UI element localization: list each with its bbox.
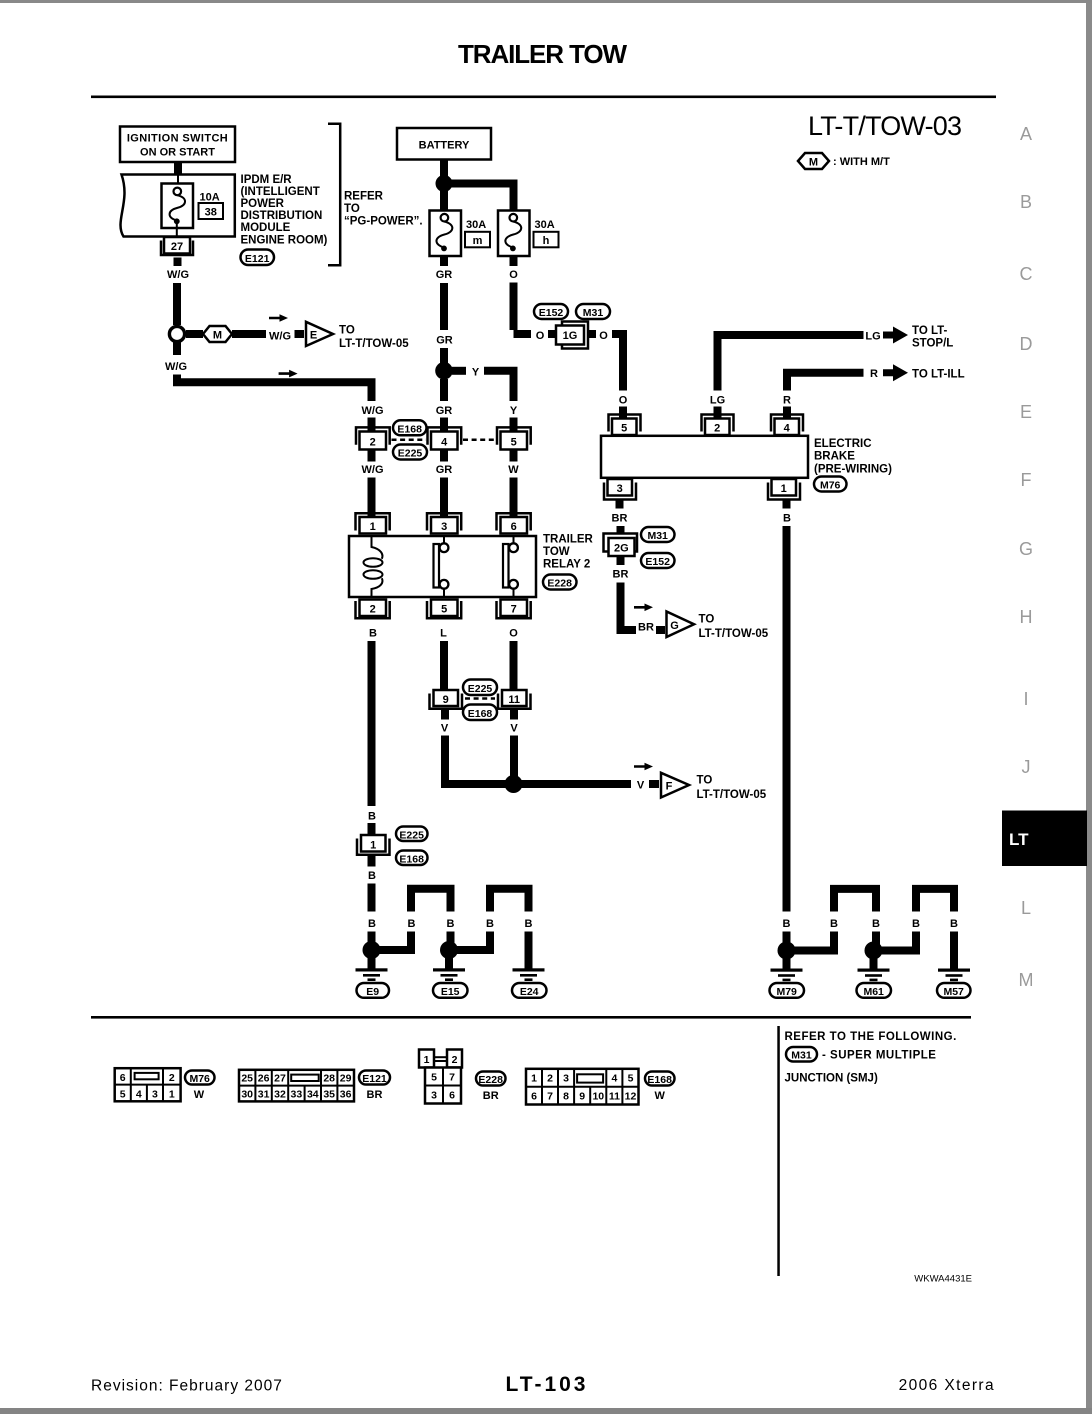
- svg-text:3: 3: [617, 483, 623, 495]
- svg-text:R: R: [783, 395, 791, 407]
- svg-text:6: 6: [120, 1072, 126, 1084]
- svg-text:E168: E168: [399, 853, 424, 865]
- svg-text:M79: M79: [776, 986, 797, 998]
- svg-text:30A: 30A: [535, 219, 555, 231]
- svg-text:28: 28: [323, 1073, 335, 1085]
- svg-text:DISTRIBUTION: DISTRIBUTION: [241, 210, 323, 222]
- svg-text:5: 5: [441, 604, 447, 616]
- svg-text:33: 33: [291, 1088, 303, 1100]
- svg-text:BR: BR: [612, 513, 628, 525]
- svg-text:TRAILER TOW: TRAILER TOW: [458, 39, 628, 69]
- svg-text:M57: M57: [943, 986, 964, 998]
- svg-text:G: G: [670, 620, 679, 632]
- svg-text:1: 1: [531, 1073, 537, 1085]
- svg-text:Y: Y: [472, 366, 480, 378]
- svg-text:JUNCTION (SMJ): JUNCTION (SMJ): [785, 1073, 878, 1085]
- svg-text:E9: E9: [366, 986, 379, 998]
- svg-text:TO: TO: [339, 325, 355, 337]
- svg-text:38: 38: [205, 207, 217, 219]
- svg-text:O: O: [509, 628, 518, 640]
- svg-text:LG: LG: [865, 331, 880, 343]
- svg-text:E168: E168: [397, 423, 422, 435]
- svg-text:ELECTRIC: ELECTRIC: [814, 438, 872, 450]
- svg-text:7: 7: [511, 604, 517, 616]
- svg-text:9: 9: [579, 1091, 585, 1103]
- svg-text:IGNITION SWITCH: IGNITION SWITCH: [127, 133, 228, 145]
- svg-text:1: 1: [781, 483, 787, 495]
- svg-text:TO LT-: TO LT-: [912, 325, 948, 337]
- svg-text:6: 6: [531, 1091, 537, 1103]
- svg-text:B: B: [368, 918, 376, 930]
- svg-text:M31: M31: [791, 1050, 812, 1062]
- svg-text:RELAY 2: RELAY 2: [543, 559, 590, 571]
- svg-text:LT-T/TOW-03: LT-T/TOW-03: [808, 111, 961, 141]
- svg-text:BR: BR: [638, 622, 654, 634]
- svg-text:B: B: [369, 628, 377, 640]
- svg-text:O: O: [619, 395, 628, 407]
- svg-text:B: B: [830, 918, 838, 930]
- svg-text:GR: GR: [436, 405, 453, 417]
- svg-text:R: R: [870, 368, 878, 380]
- svg-text:D: D: [1020, 334, 1033, 354]
- svg-text:B: B: [368, 870, 376, 882]
- svg-text:2: 2: [547, 1073, 553, 1085]
- svg-text:W/G: W/G: [362, 464, 384, 476]
- svg-text:C: C: [1020, 264, 1033, 284]
- svg-text:GR: GR: [436, 464, 453, 476]
- svg-text:35: 35: [323, 1088, 335, 1100]
- svg-text:B: B: [1020, 192, 1032, 212]
- svg-text:E168: E168: [647, 1074, 672, 1086]
- svg-text:LT-T/TOW-05: LT-T/TOW-05: [697, 789, 767, 801]
- svg-text:B: B: [486, 918, 494, 930]
- svg-text:36: 36: [340, 1088, 352, 1100]
- svg-text:BRAKE: BRAKE: [814, 451, 855, 463]
- svg-text:“PG-POWER”.: “PG-POWER”.: [344, 216, 423, 228]
- svg-text:30A: 30A: [466, 219, 486, 231]
- svg-text:1: 1: [370, 521, 376, 533]
- svg-text:G: G: [1019, 539, 1033, 559]
- svg-text:5: 5: [120, 1088, 126, 1100]
- svg-text:E225: E225: [399, 829, 424, 841]
- svg-text:TRAILER: TRAILER: [543, 534, 594, 546]
- svg-text:LT: LT: [1009, 830, 1029, 849]
- svg-text:4: 4: [611, 1073, 617, 1085]
- svg-text:GR: GR: [436, 335, 453, 347]
- svg-text:3: 3: [152, 1088, 158, 1100]
- svg-text:B: B: [783, 513, 791, 525]
- svg-text:h: h: [543, 235, 550, 247]
- svg-text:: WITH M/T: : WITH M/T: [833, 156, 890, 168]
- svg-text:3: 3: [441, 521, 447, 533]
- svg-text:H: H: [1020, 607, 1033, 627]
- svg-text:W/G: W/G: [165, 361, 187, 373]
- svg-text:30: 30: [241, 1088, 253, 1100]
- svg-text:BATTERY: BATTERY: [419, 140, 470, 152]
- svg-text:B: B: [368, 811, 376, 823]
- svg-text:TO: TO: [699, 614, 715, 626]
- svg-text:POWER: POWER: [241, 198, 285, 210]
- svg-text:4: 4: [784, 423, 791, 435]
- svg-text:ENGINE ROOM): ENGINE ROOM): [241, 235, 328, 247]
- svg-text:B: B: [912, 918, 920, 930]
- svg-text:BR: BR: [367, 1089, 383, 1101]
- svg-text:9: 9: [443, 694, 449, 706]
- svg-text:3: 3: [563, 1073, 569, 1085]
- svg-text:8: 8: [563, 1091, 569, 1103]
- svg-text:LT-T/TOW-05: LT-T/TOW-05: [699, 628, 769, 640]
- svg-text:E121: E121: [362, 1073, 387, 1085]
- svg-text:B: B: [950, 918, 958, 930]
- svg-text:W: W: [508, 464, 519, 476]
- svg-text:W/G: W/G: [269, 331, 291, 343]
- svg-text:10: 10: [592, 1091, 604, 1103]
- svg-text:REFER: REFER: [344, 191, 384, 203]
- svg-text:LT-103: LT-103: [506, 1373, 589, 1396]
- svg-text:2: 2: [714, 423, 720, 435]
- svg-text:O: O: [509, 269, 518, 281]
- svg-text:E168: E168: [468, 708, 493, 720]
- svg-text:31: 31: [258, 1088, 270, 1100]
- svg-text:MODULE: MODULE: [241, 222, 291, 234]
- svg-text:25: 25: [241, 1073, 253, 1085]
- svg-text:STOP/L: STOP/L: [912, 338, 953, 350]
- svg-text:IPDM E/R: IPDM E/R: [241, 174, 293, 186]
- svg-text:B: B: [447, 918, 455, 930]
- svg-text:1: 1: [424, 1054, 430, 1066]
- svg-text:(PRE-WIRING): (PRE-WIRING): [814, 464, 892, 476]
- svg-text:M76: M76: [189, 1073, 210, 1085]
- svg-text:L: L: [1021, 898, 1031, 918]
- svg-text:E24: E24: [520, 986, 539, 998]
- svg-text:27: 27: [171, 241, 183, 253]
- svg-text:M76: M76: [820, 480, 841, 492]
- svg-text:7: 7: [449, 1071, 455, 1083]
- svg-text:V: V: [441, 723, 449, 735]
- svg-text:GR: GR: [436, 269, 453, 281]
- svg-text:E152: E152: [645, 556, 670, 568]
- svg-text:E: E: [310, 330, 317, 342]
- svg-text:1: 1: [370, 839, 376, 851]
- svg-text:F: F: [666, 781, 673, 793]
- svg-text:6: 6: [449, 1089, 455, 1101]
- svg-text:L: L: [440, 628, 447, 640]
- svg-text:6: 6: [511, 521, 517, 533]
- svg-text:LG: LG: [710, 395, 725, 407]
- svg-text:5: 5: [621, 423, 627, 435]
- svg-text:TO: TO: [344, 203, 360, 215]
- svg-text:2: 2: [452, 1054, 458, 1066]
- svg-text:3: 3: [431, 1089, 437, 1101]
- svg-text:J: J: [1022, 757, 1031, 777]
- svg-text:Revision: February 2007: Revision: February 2007: [91, 1378, 283, 1395]
- svg-text:34: 34: [307, 1088, 319, 1100]
- svg-text:4: 4: [136, 1088, 142, 1100]
- svg-text:TO: TO: [697, 775, 713, 787]
- svg-text:5: 5: [628, 1073, 634, 1085]
- svg-text:M: M: [809, 157, 818, 169]
- svg-text:V: V: [637, 780, 645, 792]
- svg-text:TOW: TOW: [543, 546, 570, 558]
- svg-text:O: O: [536, 330, 545, 342]
- svg-text:M: M: [213, 330, 222, 342]
- svg-text:10A: 10A: [200, 192, 220, 204]
- svg-text:E225: E225: [398, 448, 423, 460]
- svg-text:Y: Y: [510, 405, 518, 417]
- svg-text:32: 32: [274, 1088, 286, 1100]
- svg-text:1G: 1G: [563, 330, 578, 342]
- svg-text:2: 2: [169, 1072, 175, 1084]
- svg-text:W/G: W/G: [167, 269, 189, 281]
- svg-text:M61: M61: [863, 986, 884, 998]
- svg-text:27: 27: [274, 1073, 286, 1085]
- svg-text:B: B: [525, 918, 533, 930]
- svg-text:M: M: [1019, 970, 1034, 990]
- svg-text:E225: E225: [468, 683, 493, 695]
- svg-text:B: B: [408, 918, 416, 930]
- svg-text:E: E: [1020, 402, 1032, 422]
- svg-text:5: 5: [511, 436, 517, 448]
- svg-text:2: 2: [370, 436, 376, 448]
- svg-text:4: 4: [441, 436, 448, 448]
- svg-text:2G: 2G: [614, 543, 629, 555]
- svg-text:F: F: [1021, 470, 1032, 490]
- svg-text:M31: M31: [647, 530, 668, 542]
- svg-text:BR: BR: [613, 569, 629, 581]
- svg-text:BR: BR: [483, 1090, 499, 1102]
- svg-text:TO LT-ILL: TO LT-ILL: [912, 369, 965, 381]
- svg-text:2006 Xterra: 2006 Xterra: [899, 1377, 995, 1394]
- svg-text:O: O: [599, 330, 608, 342]
- svg-text:WKWA4431E: WKWA4431E: [914, 1274, 972, 1285]
- svg-text:I: I: [1023, 689, 1028, 709]
- svg-text:5: 5: [431, 1071, 437, 1083]
- svg-text:m: m: [473, 235, 483, 247]
- svg-text:W: W: [655, 1090, 666, 1102]
- svg-text:E228: E228: [547, 578, 572, 590]
- svg-text:29: 29: [340, 1073, 352, 1085]
- svg-text:(INTELLIGENT: (INTELLIGENT: [241, 186, 320, 198]
- svg-text:1: 1: [169, 1088, 175, 1100]
- svg-text:11: 11: [508, 694, 520, 706]
- svg-text:W/G: W/G: [362, 405, 384, 417]
- svg-text:ON OR START: ON OR START: [140, 147, 215, 159]
- svg-text:B: B: [783, 918, 791, 930]
- svg-text:E152: E152: [539, 307, 564, 319]
- svg-text:B: B: [872, 918, 880, 930]
- svg-text:W: W: [194, 1089, 205, 1101]
- svg-text:7: 7: [547, 1091, 553, 1103]
- svg-text:12: 12: [625, 1091, 637, 1103]
- svg-text:2: 2: [370, 604, 376, 616]
- svg-text:E15: E15: [441, 986, 460, 998]
- svg-text:E228: E228: [478, 1074, 503, 1086]
- svg-text:A: A: [1020, 124, 1032, 144]
- svg-text:- SUPER MULTIPLE: - SUPER MULTIPLE: [822, 1050, 936, 1062]
- svg-text:REFER TO THE FOLLOWING.: REFER TO THE FOLLOWING.: [785, 1031, 957, 1043]
- svg-text:V: V: [510, 723, 518, 735]
- svg-text:26: 26: [258, 1073, 270, 1085]
- svg-text:M31: M31: [583, 307, 604, 319]
- svg-text:11: 11: [609, 1091, 620, 1103]
- svg-text:LT-T/TOW-05: LT-T/TOW-05: [339, 338, 409, 350]
- svg-text:E121: E121: [245, 253, 270, 265]
